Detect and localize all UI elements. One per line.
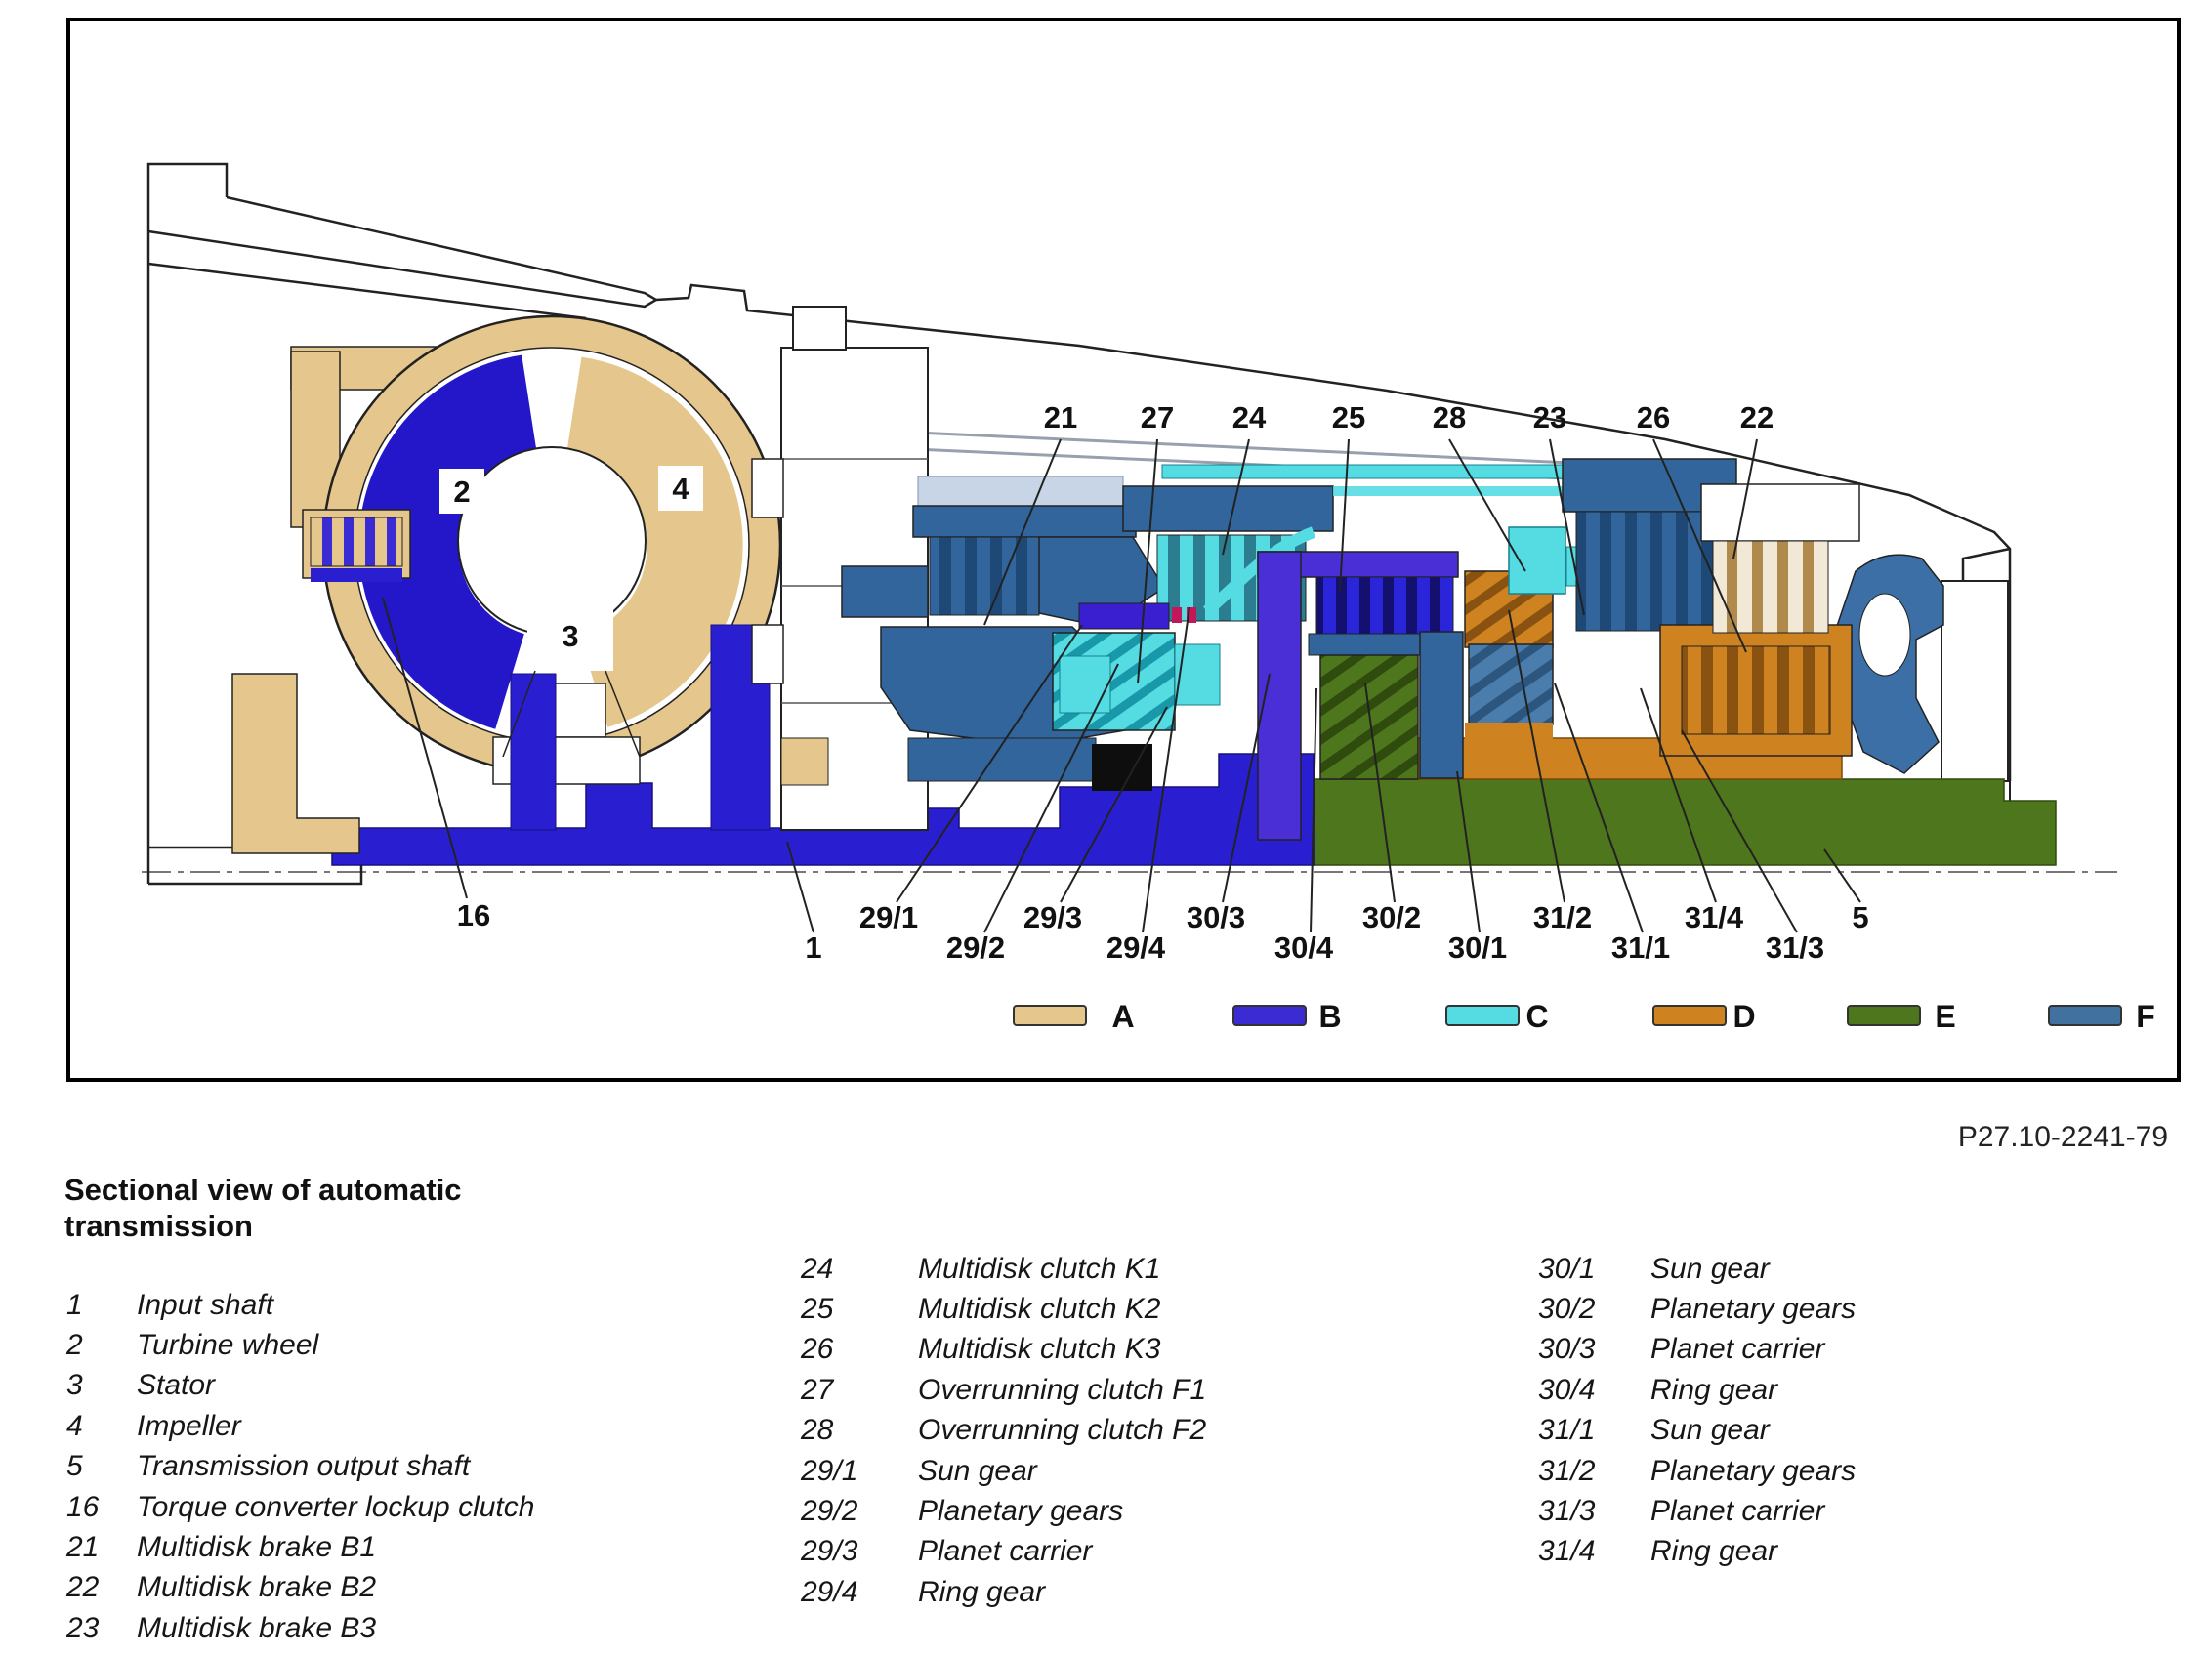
part-row-29-3: 29/3Planet carrier: [801, 1532, 1387, 1572]
callout-25: 25: [1332, 400, 1365, 434]
part-name: Sun gear: [1650, 1414, 2085, 1447]
part-number: 21: [66, 1531, 137, 1564]
part-name: Multidisk brake B2: [137, 1571, 613, 1604]
callout-29-2: 29/2: [946, 931, 1005, 965]
ring-gear-30: [1420, 632, 1463, 778]
part-name: Planet carrier: [918, 1535, 1387, 1568]
part-number: 30/2: [1538, 1293, 1650, 1326]
callout-21: 21: [1044, 400, 1077, 434]
part-row-16: 16Torque converter lockup clutch: [66, 1487, 613, 1527]
callout-28: 28: [1433, 400, 1466, 434]
callout-30-4: 30/4: [1274, 931, 1334, 965]
part-number: 29/2: [801, 1495, 918, 1528]
part-name: Impeller: [137, 1410, 613, 1443]
part-number: 31/2: [1538, 1455, 1650, 1488]
parts-list-column-3: 30/1Sun gear30/2Planetary gears30/3Plane…: [1538, 1249, 2085, 1572]
callout-29-1: 29/1: [859, 900, 918, 934]
sun-gear-31: [1469, 644, 1553, 724]
part-number: 16: [66, 1491, 137, 1524]
part-number: 27: [801, 1374, 918, 1407]
part-number: 23: [66, 1612, 137, 1645]
part-row-1: 1Input shaft: [66, 1285, 613, 1325]
part-name: Planet carrier: [1650, 1333, 2085, 1366]
part-row-30-2: 30/2Planetary gears: [1538, 1289, 2085, 1329]
legend-swatch-C: [1446, 1006, 1519, 1025]
caption-line-2: transmission: [64, 1208, 748, 1244]
callout-27: 27: [1141, 400, 1174, 434]
legend-letter-A: A: [1111, 999, 1134, 1034]
figure-reference-number: P27.10-2241-79: [1758, 1121, 2168, 1154]
callout-26: 26: [1637, 400, 1670, 434]
part-number: 1: [66, 1289, 137, 1322]
part-name: Multidisk clutch K1: [918, 1253, 1387, 1286]
part-number: 28: [801, 1414, 918, 1447]
part-row-4: 4Impeller: [66, 1406, 613, 1446]
legend-swatch-D: [1653, 1006, 1726, 1025]
callout-29-4: 29/4: [1106, 931, 1166, 965]
callout-5: 5: [1852, 900, 1868, 934]
document-page: 243 212724252823262216129/129/229/329/43…: [0, 0, 2212, 1655]
part-row-26: 26Multidisk clutch K3: [801, 1330, 1387, 1370]
legend-letter-C: C: [1525, 999, 1548, 1034]
part-number: 25: [801, 1293, 918, 1326]
callout-22: 22: [1740, 400, 1774, 434]
part-name: Turbine wheel: [137, 1329, 613, 1362]
part-number: 22: [66, 1571, 137, 1604]
part-number: 29/4: [801, 1576, 918, 1609]
plate-label-3: 3: [562, 619, 578, 653]
part-row-25: 25Multidisk clutch K2: [801, 1289, 1387, 1329]
part-name: Multidisk clutch K2: [918, 1293, 1387, 1326]
planetary-31: [1465, 571, 1553, 742]
legend-swatch-E: [1848, 1006, 1920, 1025]
part-name: Input shaft: [137, 1289, 613, 1322]
part-name: Overrunning clutch F1: [918, 1374, 1387, 1407]
callout-30-2: 30/2: [1362, 900, 1421, 934]
part-row-3: 3Stator: [66, 1366, 613, 1406]
part-row-2: 2Turbine wheel: [66, 1325, 613, 1365]
part-name: Multidisk brake B1: [137, 1531, 613, 1564]
part-number: 4: [66, 1410, 137, 1443]
callout-31-3: 31/3: [1766, 931, 1824, 965]
legend-letter-B: B: [1318, 999, 1341, 1034]
part-name: Planetary gears: [918, 1495, 1387, 1528]
plate-label-4: 4: [672, 472, 689, 506]
callout-24: 24: [1232, 400, 1267, 434]
legend-letter-D: D: [1732, 999, 1755, 1034]
part-name: Planetary gears: [1650, 1455, 2085, 1488]
plate-label-2: 2: [453, 475, 470, 509]
part-number: 3: [66, 1369, 137, 1402]
part-name: Planetary gears: [1650, 1293, 2085, 1326]
part-number: 30/3: [1538, 1333, 1650, 1366]
legend-swatch-A: [1014, 1006, 1086, 1025]
figure-caption: Sectional view of automatic transmission: [64, 1172, 748, 1244]
part-name: Stator: [137, 1369, 613, 1402]
callout-31-2: 31/2: [1533, 900, 1592, 934]
turbine-hub-shaft: [511, 674, 556, 830]
legend-swatch-F: [2049, 1006, 2121, 1025]
part-name: Ring gear: [1650, 1535, 2085, 1568]
part-row-27: 27Overrunning clutch F1: [801, 1370, 1387, 1410]
part-row-29-1: 29/1Sun gear: [801, 1451, 1387, 1491]
part-row-30-4: 30/4Ring gear: [1538, 1370, 2085, 1410]
part-row-28: 28Overrunning clutch F2: [801, 1411, 1387, 1451]
part-name: Torque converter lockup clutch: [137, 1491, 613, 1524]
part-number: 26: [801, 1333, 918, 1366]
part-row-5: 5Transmission output shaft: [66, 1447, 613, 1487]
part-row-21: 21Multidisk brake B1: [66, 1527, 613, 1567]
part-number: 31/1: [1538, 1414, 1650, 1447]
parts-list-column-1: 1Input shaft2Turbine wheel3Stator4Impell…: [66, 1285, 613, 1649]
part-number: 30/4: [1538, 1374, 1650, 1407]
part-row-22: 22Multidisk brake B2: [66, 1568, 613, 1608]
part-number: 29/1: [801, 1455, 918, 1488]
callout-31-1: 31/1: [1611, 931, 1670, 965]
caption-line-1: Sectional view of automatic: [64, 1172, 748, 1208]
legend-swatch-B: [1233, 1006, 1306, 1025]
part-name: Ring gear: [1650, 1374, 2085, 1407]
callout-31-4: 31/4: [1685, 900, 1744, 934]
part-row-29-4: 29/4Ring gear: [801, 1572, 1387, 1612]
part-row-23: 23Multidisk brake B3: [66, 1608, 613, 1648]
part-row-24: 24Multidisk clutch K1: [801, 1249, 1387, 1289]
part-name: Overrunning clutch F2: [918, 1414, 1387, 1447]
callout-16: 16: [457, 898, 490, 932]
ring-gear-29: [1175, 644, 1220, 705]
part-row-29-2: 29/2Planetary gears: [801, 1491, 1387, 1531]
part-number: 31/4: [1538, 1535, 1650, 1568]
callout-30-1: 30/1: [1448, 931, 1507, 965]
callout-23: 23: [1533, 400, 1566, 434]
part-row-31-2: 31/2Planetary gears: [1538, 1451, 2085, 1491]
sun-gear-29: [1079, 603, 1169, 629]
lockup-clutch: [303, 510, 410, 582]
callout-30-3: 30/3: [1187, 900, 1245, 934]
part-name: Sun gear: [918, 1455, 1387, 1488]
callout-29-3: 29/3: [1023, 900, 1082, 934]
part-row-30-1: 30/1Sun gear: [1538, 1249, 2085, 1289]
part-number: 5: [66, 1450, 137, 1483]
part-name: Transmission output shaft: [137, 1450, 613, 1483]
legend-letter-E: E: [1935, 999, 1955, 1034]
legend-letter-F: F: [2136, 999, 2155, 1034]
part-number: 29/3: [801, 1535, 918, 1568]
part-name: Planet carrier: [1650, 1495, 2085, 1528]
clutch-k2-pack: [1316, 577, 1453, 634]
part-row-31-1: 31/1Sun gear: [1538, 1411, 2085, 1451]
part-name: Multidisk brake B3: [137, 1612, 613, 1645]
part-number: 30/1: [1538, 1253, 1650, 1286]
part-number: 2: [66, 1329, 137, 1362]
parts-list-column-2: 24Multidisk clutch K125Multidisk clutch …: [801, 1249, 1387, 1613]
part-number: 24: [801, 1253, 918, 1286]
part-name: Ring gear: [918, 1576, 1387, 1609]
part-number: 31/3: [1538, 1495, 1650, 1528]
part-row-31-3: 31/3Planet carrier: [1538, 1491, 2085, 1531]
callout-1: 1: [805, 931, 821, 965]
output-shaft: [1314, 779, 2056, 865]
clutch-k3: [1660, 625, 1852, 756]
part-row-30-3: 30/3Planet carrier: [1538, 1330, 2085, 1370]
part-row-31-4: 31/4Ring gear: [1538, 1532, 2085, 1572]
part-name: Sun gear: [1650, 1253, 2085, 1286]
part-name: Multidisk clutch K3: [918, 1333, 1387, 1366]
